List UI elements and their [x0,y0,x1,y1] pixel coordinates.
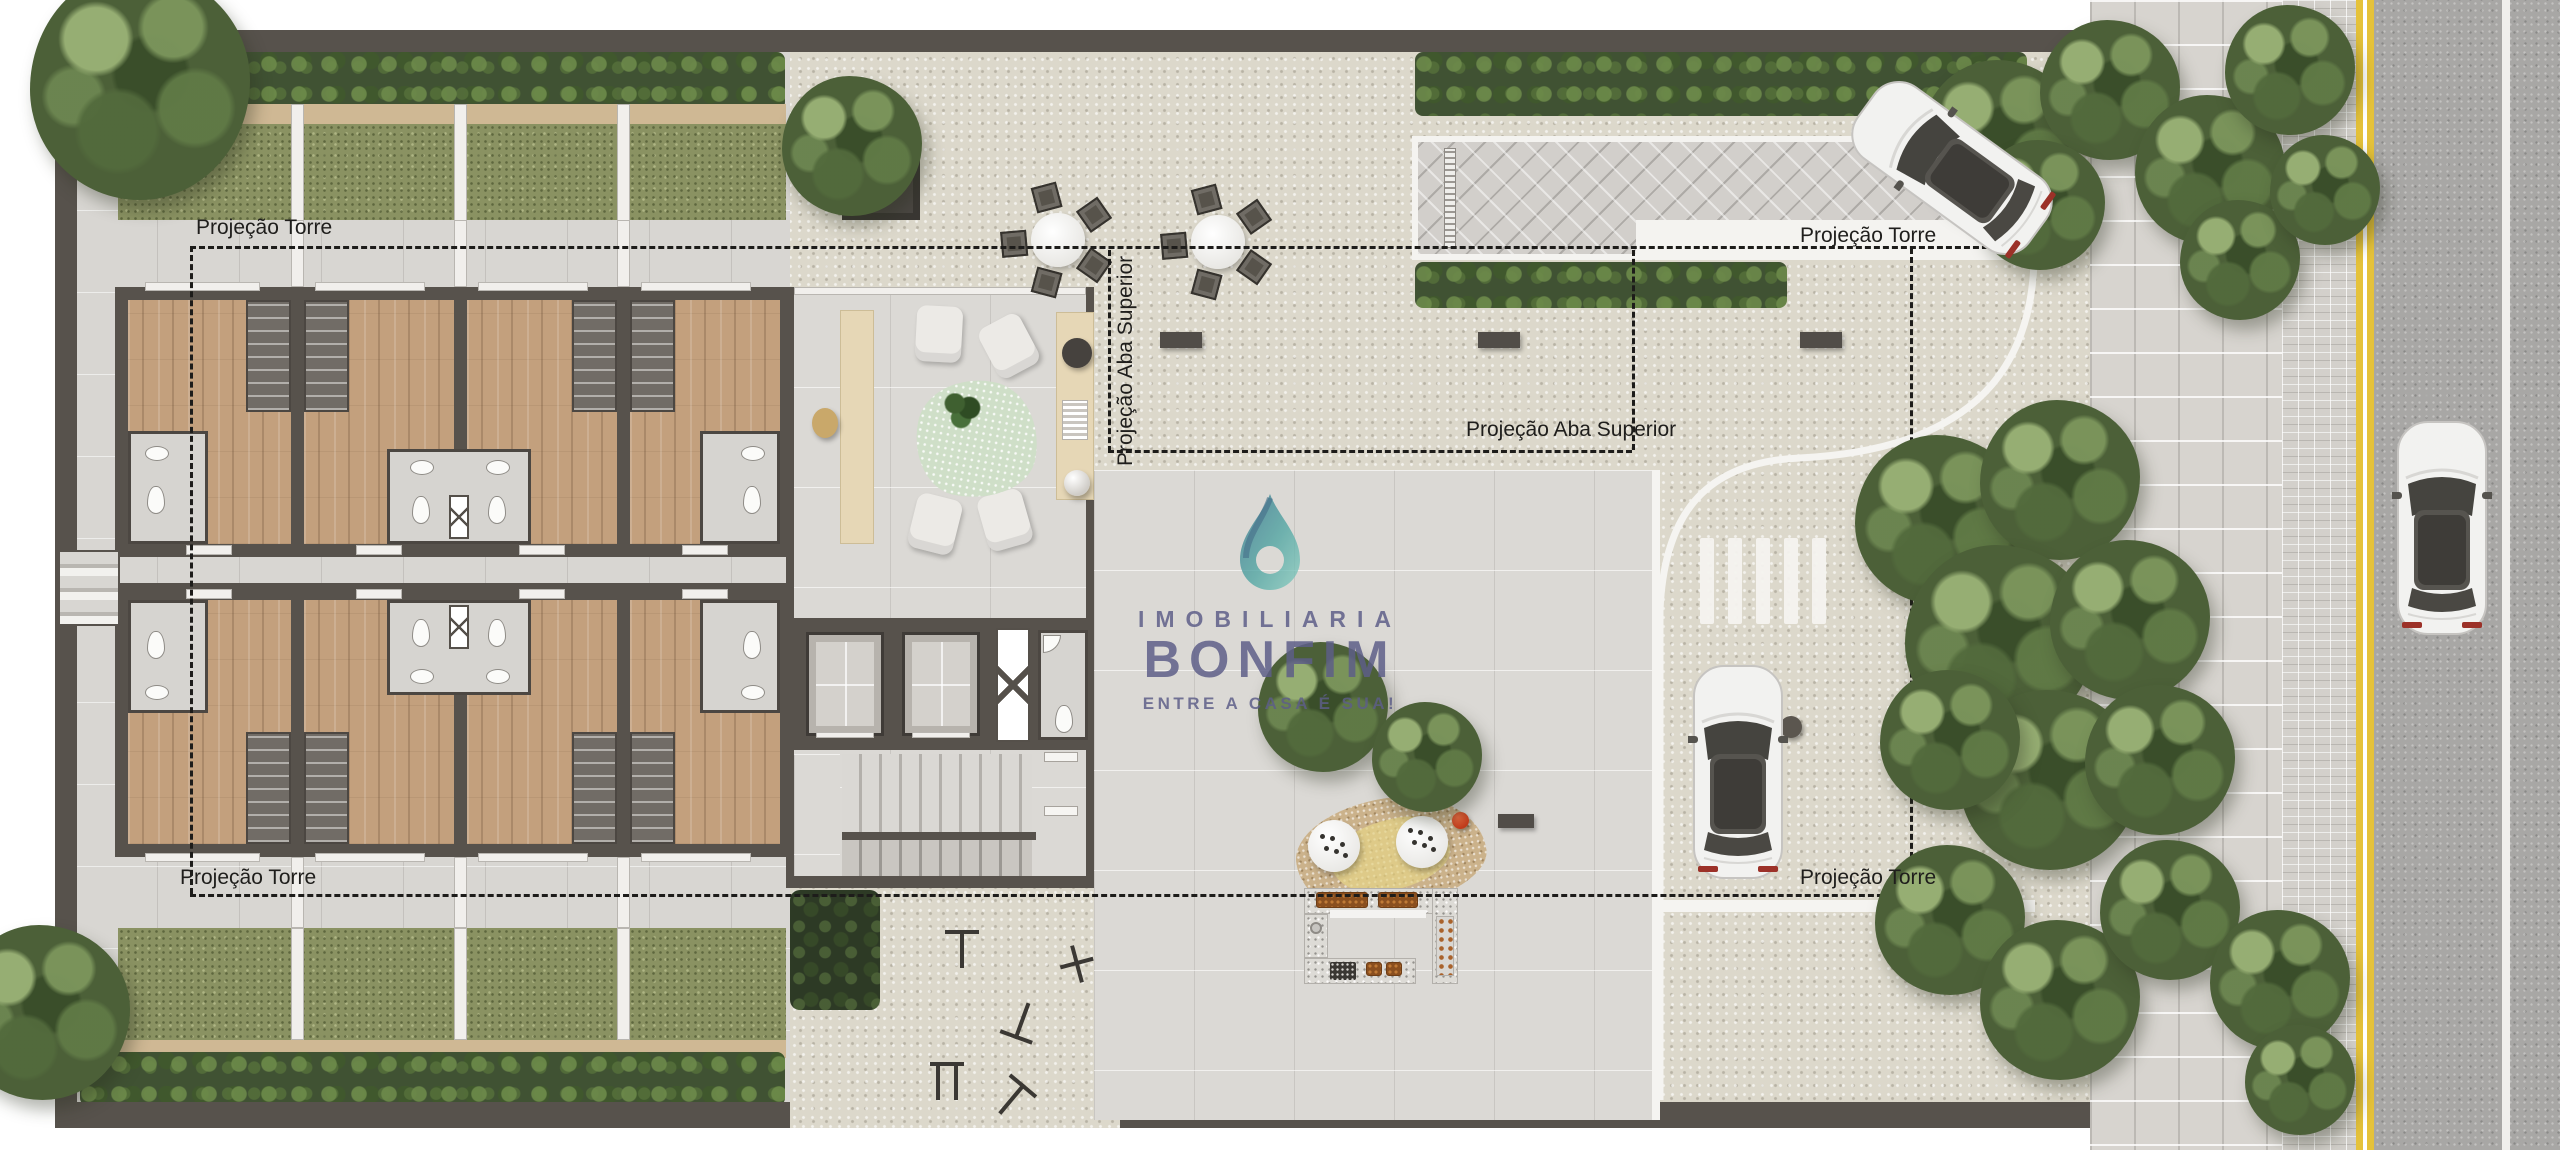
label-projecao-aba-superior-horizontal: Projeção Aba Superior [1466,418,1676,441]
label-projecao-torre-bottom-left: Projeção Torre [180,866,316,889]
tree [2225,5,2355,135]
tree [1372,702,1482,812]
tree [2270,135,2380,245]
watermark-tagline: ENTRE A CASA É SUA! [1040,694,1500,714]
water-drop-icon [1232,492,1308,600]
projection-line [190,246,193,894]
label-projecao-torre-bottom-right: Projeção Torre [1800,866,1936,889]
tree [1980,400,2140,560]
label-projecao-torre-top-left: Projeção Torre [196,216,332,239]
tree [2085,685,2235,835]
watermark-logo: IMOBILIARIA BONFIM ENTRE A CASA É SUA! [1040,492,1500,714]
projection-line [1108,250,1111,452]
car-on-street [2392,418,2492,638]
tree [782,76,922,216]
watermark-brand: BONFIM [1040,633,1500,688]
label-projecao-aba-superior-vertical: Projeção Aba Superior [1114,256,1137,466]
tree [2050,540,2210,700]
parked-car [1688,662,1788,882]
projection-line [190,246,2060,249]
watermark-kicker: IMOBILIARIA [1040,606,1500,633]
label-projecao-torre-top-right: Projeção Torre [1800,224,1936,247]
projection-line [190,894,1910,897]
tree [1880,670,2020,810]
projection-line [1108,450,1632,453]
tree [2245,1025,2355,1135]
site-plan-render: Projeção Torre Projeção Torre Projeção T… [0,0,2560,1150]
